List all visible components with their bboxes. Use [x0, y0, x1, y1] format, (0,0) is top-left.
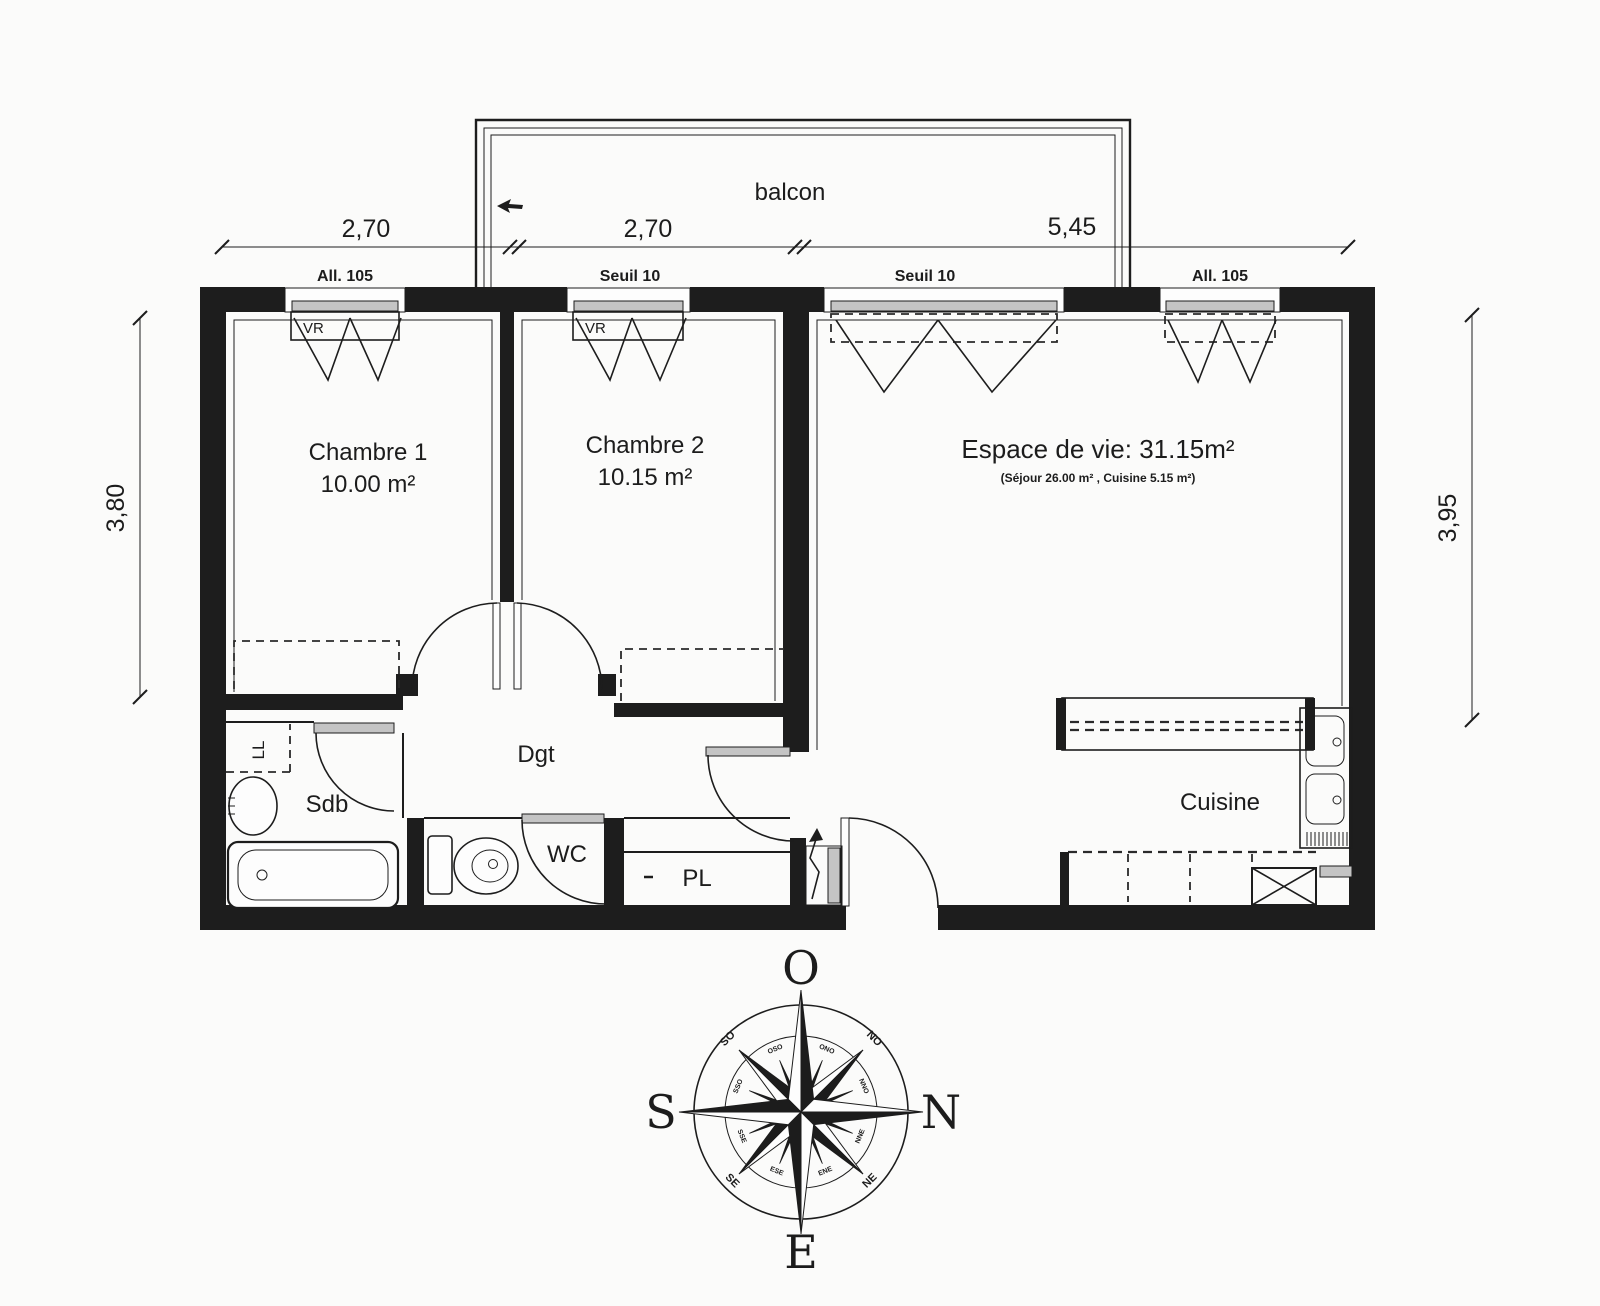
chambre1-name: Chambre 1	[309, 439, 428, 466]
wc-label: WC	[547, 841, 587, 868]
hallway-label: Dgt	[517, 741, 555, 768]
chambre2-area: 10.15 m²	[598, 464, 693, 491]
balcony-label: balcon	[755, 179, 826, 206]
bathroom-label: Sdb	[306, 791, 349, 818]
washing-machine-label: LL	[249, 741, 268, 760]
bathtub	[228, 842, 398, 908]
floor-plan-canvas: 2,70 2,70 5,45 3,80 3,95 balcon	[0, 0, 1600, 1306]
chambre2-name: Chambre 2	[586, 432, 705, 459]
compass-east-label: E	[784, 1225, 818, 1279]
window-label: All. 105	[317, 268, 373, 285]
compass-north-label: N	[921, 1085, 961, 1139]
living-title: Espace de vie: 31.15m²	[961, 434, 1234, 464]
compass-west-label: O	[782, 941, 820, 995]
toilet	[428, 836, 518, 894]
window-label: All. 105	[1192, 268, 1248, 285]
dim-top-1: 2,70	[342, 215, 391, 243]
dim-top-3: 5,45	[1048, 213, 1097, 241]
chambre1-area: 10.00 m²	[321, 471, 416, 498]
compass-south-label: S	[645, 1085, 677, 1139]
closet-label: PL	[682, 865, 711, 892]
dim-right: 3,95	[1434, 494, 1462, 543]
living-subtitle: (Séjour 26.00 m² , Cuisine 5.15 m²)	[1001, 471, 1196, 485]
window-label: Seuil 10	[600, 268, 661, 285]
shutter-label: VR	[585, 320, 606, 337]
floor-plan-drawing: 2,70 2,70 5,45 3,80 3,95 balcon	[0, 0, 1600, 1306]
dim-left: 3,80	[102, 484, 130, 533]
shutter-label: VR	[303, 320, 324, 337]
window-label: Seuil 10	[895, 268, 956, 285]
washbasin	[228, 777, 277, 835]
dim-top-2: 2,70	[624, 215, 673, 243]
kitchen-label: Cuisine	[1180, 789, 1260, 816]
